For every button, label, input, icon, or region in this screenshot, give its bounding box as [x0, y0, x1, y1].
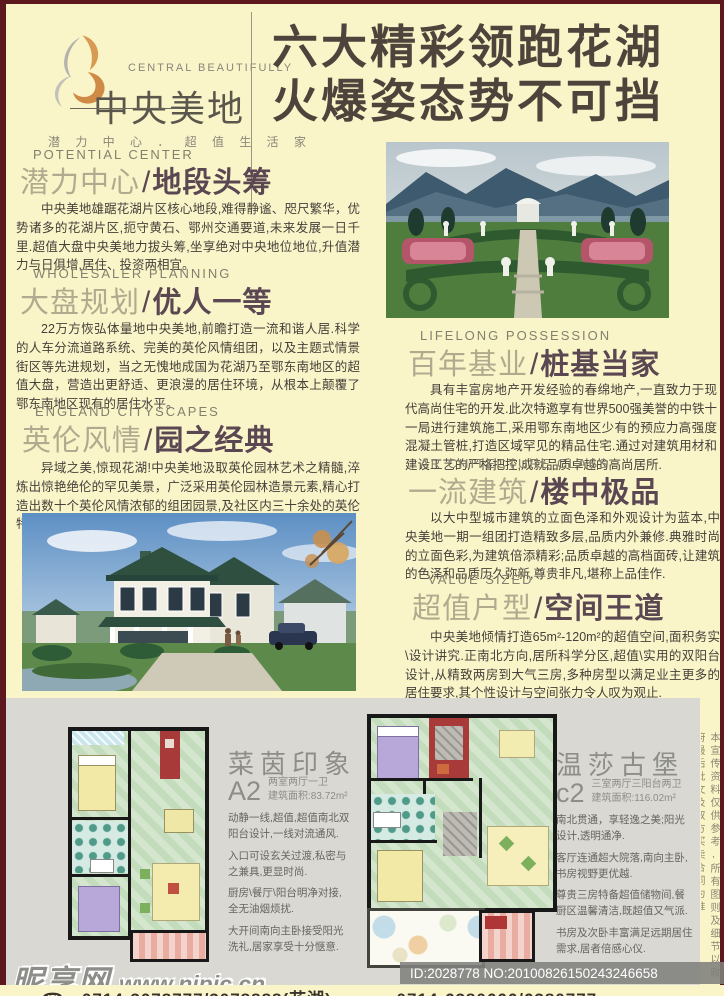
- patio-polkadot: [367, 908, 485, 968]
- heading-slash: /: [532, 592, 544, 625]
- interior-wall: [72, 817, 130, 820]
- headline-line1: 六大精彩领跑花湖: [272, 20, 664, 74]
- heading-light-text: 英伦风情: [22, 425, 142, 457]
- floorplan-c2-title: 温莎古堡: [556, 745, 684, 782]
- desc-line: 南北贯通，享轻逸之美;阳光设计,透明通净.: [556, 812, 694, 845]
- floorplan-c2-code: c2: [556, 778, 585, 809]
- heading-bold-text: 楼中极品: [540, 477, 660, 509]
- desc-line: 客厅连通超大院落,南向主卧,书房视野更优越.: [556, 850, 694, 883]
- floorplan-c2-code-row: c2 三室两厅三阳台两卫 建筑面积:116.02m²: [556, 778, 682, 809]
- bathtub: [373, 812, 401, 828]
- spec-rooms: 两室两厅一卫: [268, 776, 347, 790]
- sofa-set: [487, 826, 549, 886]
- desc-line: 书房及次卧丰富满足远期居住需求,居者倍感心仪.: [556, 925, 694, 958]
- page-border-top: [0, 0, 724, 4]
- section-heading-lifelong-possession: 百年基业/桩基当家: [408, 341, 660, 383]
- heading-slash: /: [528, 348, 540, 381]
- floorplan-a2-code: A2: [228, 776, 261, 807]
- section-body-wholesaler-planning: 22万方恢弘体量地中央美地,前瞻打造一流和谐人居.科学的人车分流道路系统、完美的…: [16, 320, 360, 414]
- spec-area: 建筑面积:116.02m²: [592, 792, 682, 806]
- plant: [140, 903, 150, 913]
- bed-master: [78, 765, 116, 811]
- heading-bold-text: 优人一等: [152, 287, 272, 319]
- section-heading-potential-center: 潜力中心/地段头筹: [20, 159, 272, 201]
- balcony-fixture: [485, 916, 507, 929]
- bed-master: [377, 736, 419, 780]
- floorplan-a2-spec: 两室两厅一卫 建筑面积:83.72m²: [268, 776, 347, 804]
- headline-line2: 火爆姿态势不可挡: [272, 74, 664, 128]
- heading-bold-text: 空间王道: [544, 593, 664, 625]
- heading-light-text: 超值户型: [412, 593, 532, 625]
- watermark-id-bar: ID:2028778 NO:20100826150243246658: [400, 962, 724, 984]
- interior-wall: [371, 840, 437, 843]
- section-heading-architecture-class: 一流建筑/楼中极品: [408, 469, 660, 511]
- desc-line: 厨房\餐厅\阳台明净对接,全无油烟烦扰.: [228, 885, 352, 918]
- floorplan-c2-description: 南北贯通，享轻逸之美;阳光设计,透明通净. 客厅连通超大院落,南向主卧,书房视野…: [556, 812, 694, 962]
- phone-number-right: 0714-6380666/6380777: [397, 990, 598, 996]
- interior-wall: [371, 778, 473, 781]
- phone-number-left: 0714-3078777/3078888(花湖): [82, 985, 332, 996]
- floorplan-c2-drawing: [367, 714, 557, 964]
- desc-line: 动静一线,超值,超值南北双阳台设计,一线对流通风.: [228, 810, 352, 843]
- spec-rooms: 三室两厅三阳台两卫: [592, 778, 682, 792]
- disclaimer-vertical-text: 本宣传资料仅供参考,所有图则及细节以政府最后批文及双方买卖合同为准: [701, 732, 721, 985]
- section-heading-value-sized: 超值户型/空间王道: [412, 585, 664, 627]
- section-body-potential-center: 中央美地雄踞花湖片区核心地段,难得静谧、咫尺繁华，优势诸多的花湖片区,扼守黄石、…: [16, 200, 360, 275]
- toilet: [90, 859, 114, 873]
- logo-strike-line: [70, 108, 180, 109]
- heading-light-text: 潜力中心: [20, 167, 140, 199]
- desc-line: 尊贵三房特备超值储物间,餐厨区温馨清洁,既超值又气派.: [556, 887, 694, 920]
- logo-english-name: CENTRAL BEAUTIFULLY: [128, 62, 293, 74]
- desc-line: 入口可设玄关过渡,私密与之兼具,更显时尚.: [228, 848, 352, 881]
- phone-strip: ☎ 0714-3078777/3078888(花湖) 0714-6380666/…: [0, 985, 724, 996]
- interior-wall: [479, 778, 482, 858]
- flyer-page: CENTRAL BEAUTIFULLY 中央美地 潜 力 中 心 ． 超 值 生…: [0, 0, 724, 996]
- desc-line: 大开间南向主卧接受阳光洗礼,居家享受十分惬意.: [228, 923, 352, 956]
- section-heading-england-cityscapes: 英伦风情/园之经典: [22, 417, 274, 459]
- heading-slash: /: [142, 424, 154, 457]
- entry-fixture: [165, 739, 174, 748]
- plant: [140, 869, 150, 879]
- heading-light-text: 一流建筑: [408, 477, 528, 509]
- heading-slash: /: [528, 476, 540, 509]
- kitchen-counter: [435, 726, 463, 760]
- heading-slash: /: [140, 286, 152, 319]
- floorplan-a2-drawing: [68, 727, 209, 958]
- bed-second: [78, 886, 120, 932]
- storage-room: [443, 812, 477, 856]
- phone-icon: ☎: [42, 990, 63, 996]
- section-body-value-sized: 中央美地倾情打造65m²-120m²的超值空间,面积务实\设计讲究.正南北方向,…: [405, 628, 720, 703]
- window-glazing: [72, 731, 124, 745]
- floorplan-c2-outline: [367, 714, 557, 912]
- interior-wall: [72, 874, 130, 877]
- logo-chinese-name: 中央美地: [93, 80, 245, 132]
- heading-bold-text: 桩基当家: [540, 349, 660, 381]
- spec-area: 建筑面积:83.72m²: [268, 790, 347, 804]
- study-table: [499, 730, 535, 758]
- garden-photo: [386, 142, 669, 318]
- heading-light-text: 百年基业: [408, 349, 528, 381]
- coffee-table: [168, 883, 179, 894]
- floorplan-c2-spec: 三室两厅三阳台两卫 建筑面积:116.02m²: [592, 778, 682, 806]
- heading-light-text: 大盘规划: [20, 287, 140, 319]
- stove: [437, 764, 449, 774]
- bed-second: [377, 850, 423, 902]
- house-photo: [22, 513, 356, 691]
- heading-bold-text: 园之经典: [154, 425, 274, 457]
- heading-bold-text: 地段头筹: [152, 167, 272, 199]
- floorplan-a2-code-row: A2 两室两厅一卫 建筑面积:83.72m²: [228, 776, 348, 807]
- section-heading-wholesaler-planning: 大盘规划/优人一等: [20, 279, 272, 321]
- heading-slash: /: [140, 166, 152, 199]
- interior-wall: [128, 731, 131, 936]
- floorplan-a2-outline: [68, 727, 209, 940]
- dining-table: [164, 809, 194, 833]
- floorplan-a2-description: 动静一线,超值,超值南北双阳台设计,一线对流通风. 入口可设玄关过渡,私密与之兼…: [228, 810, 352, 960]
